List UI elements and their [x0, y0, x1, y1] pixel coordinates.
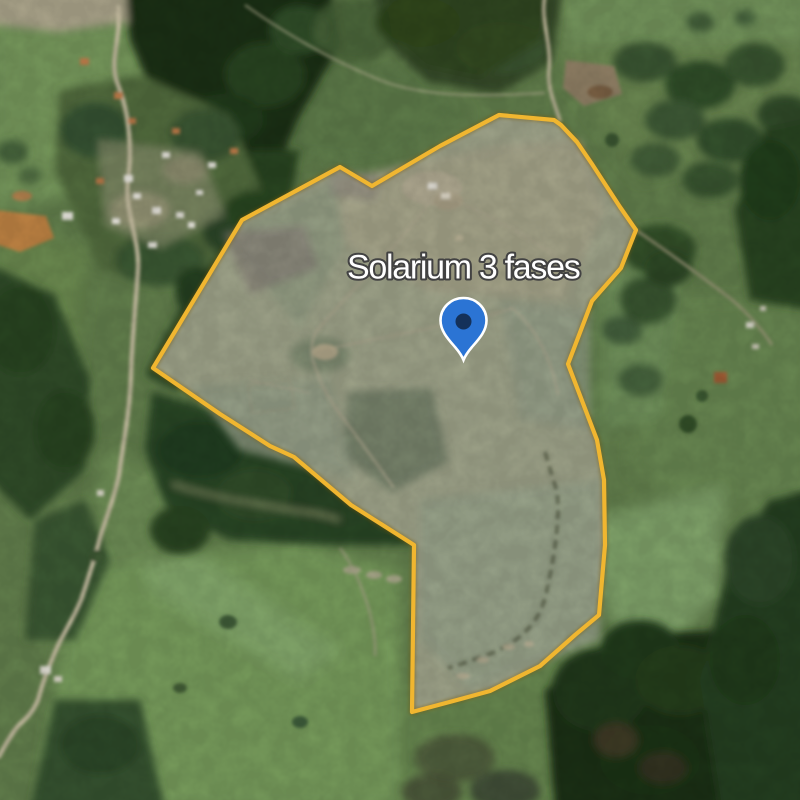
svg-text:Solarium 3 fases: Solarium 3 fases — [347, 249, 580, 287]
